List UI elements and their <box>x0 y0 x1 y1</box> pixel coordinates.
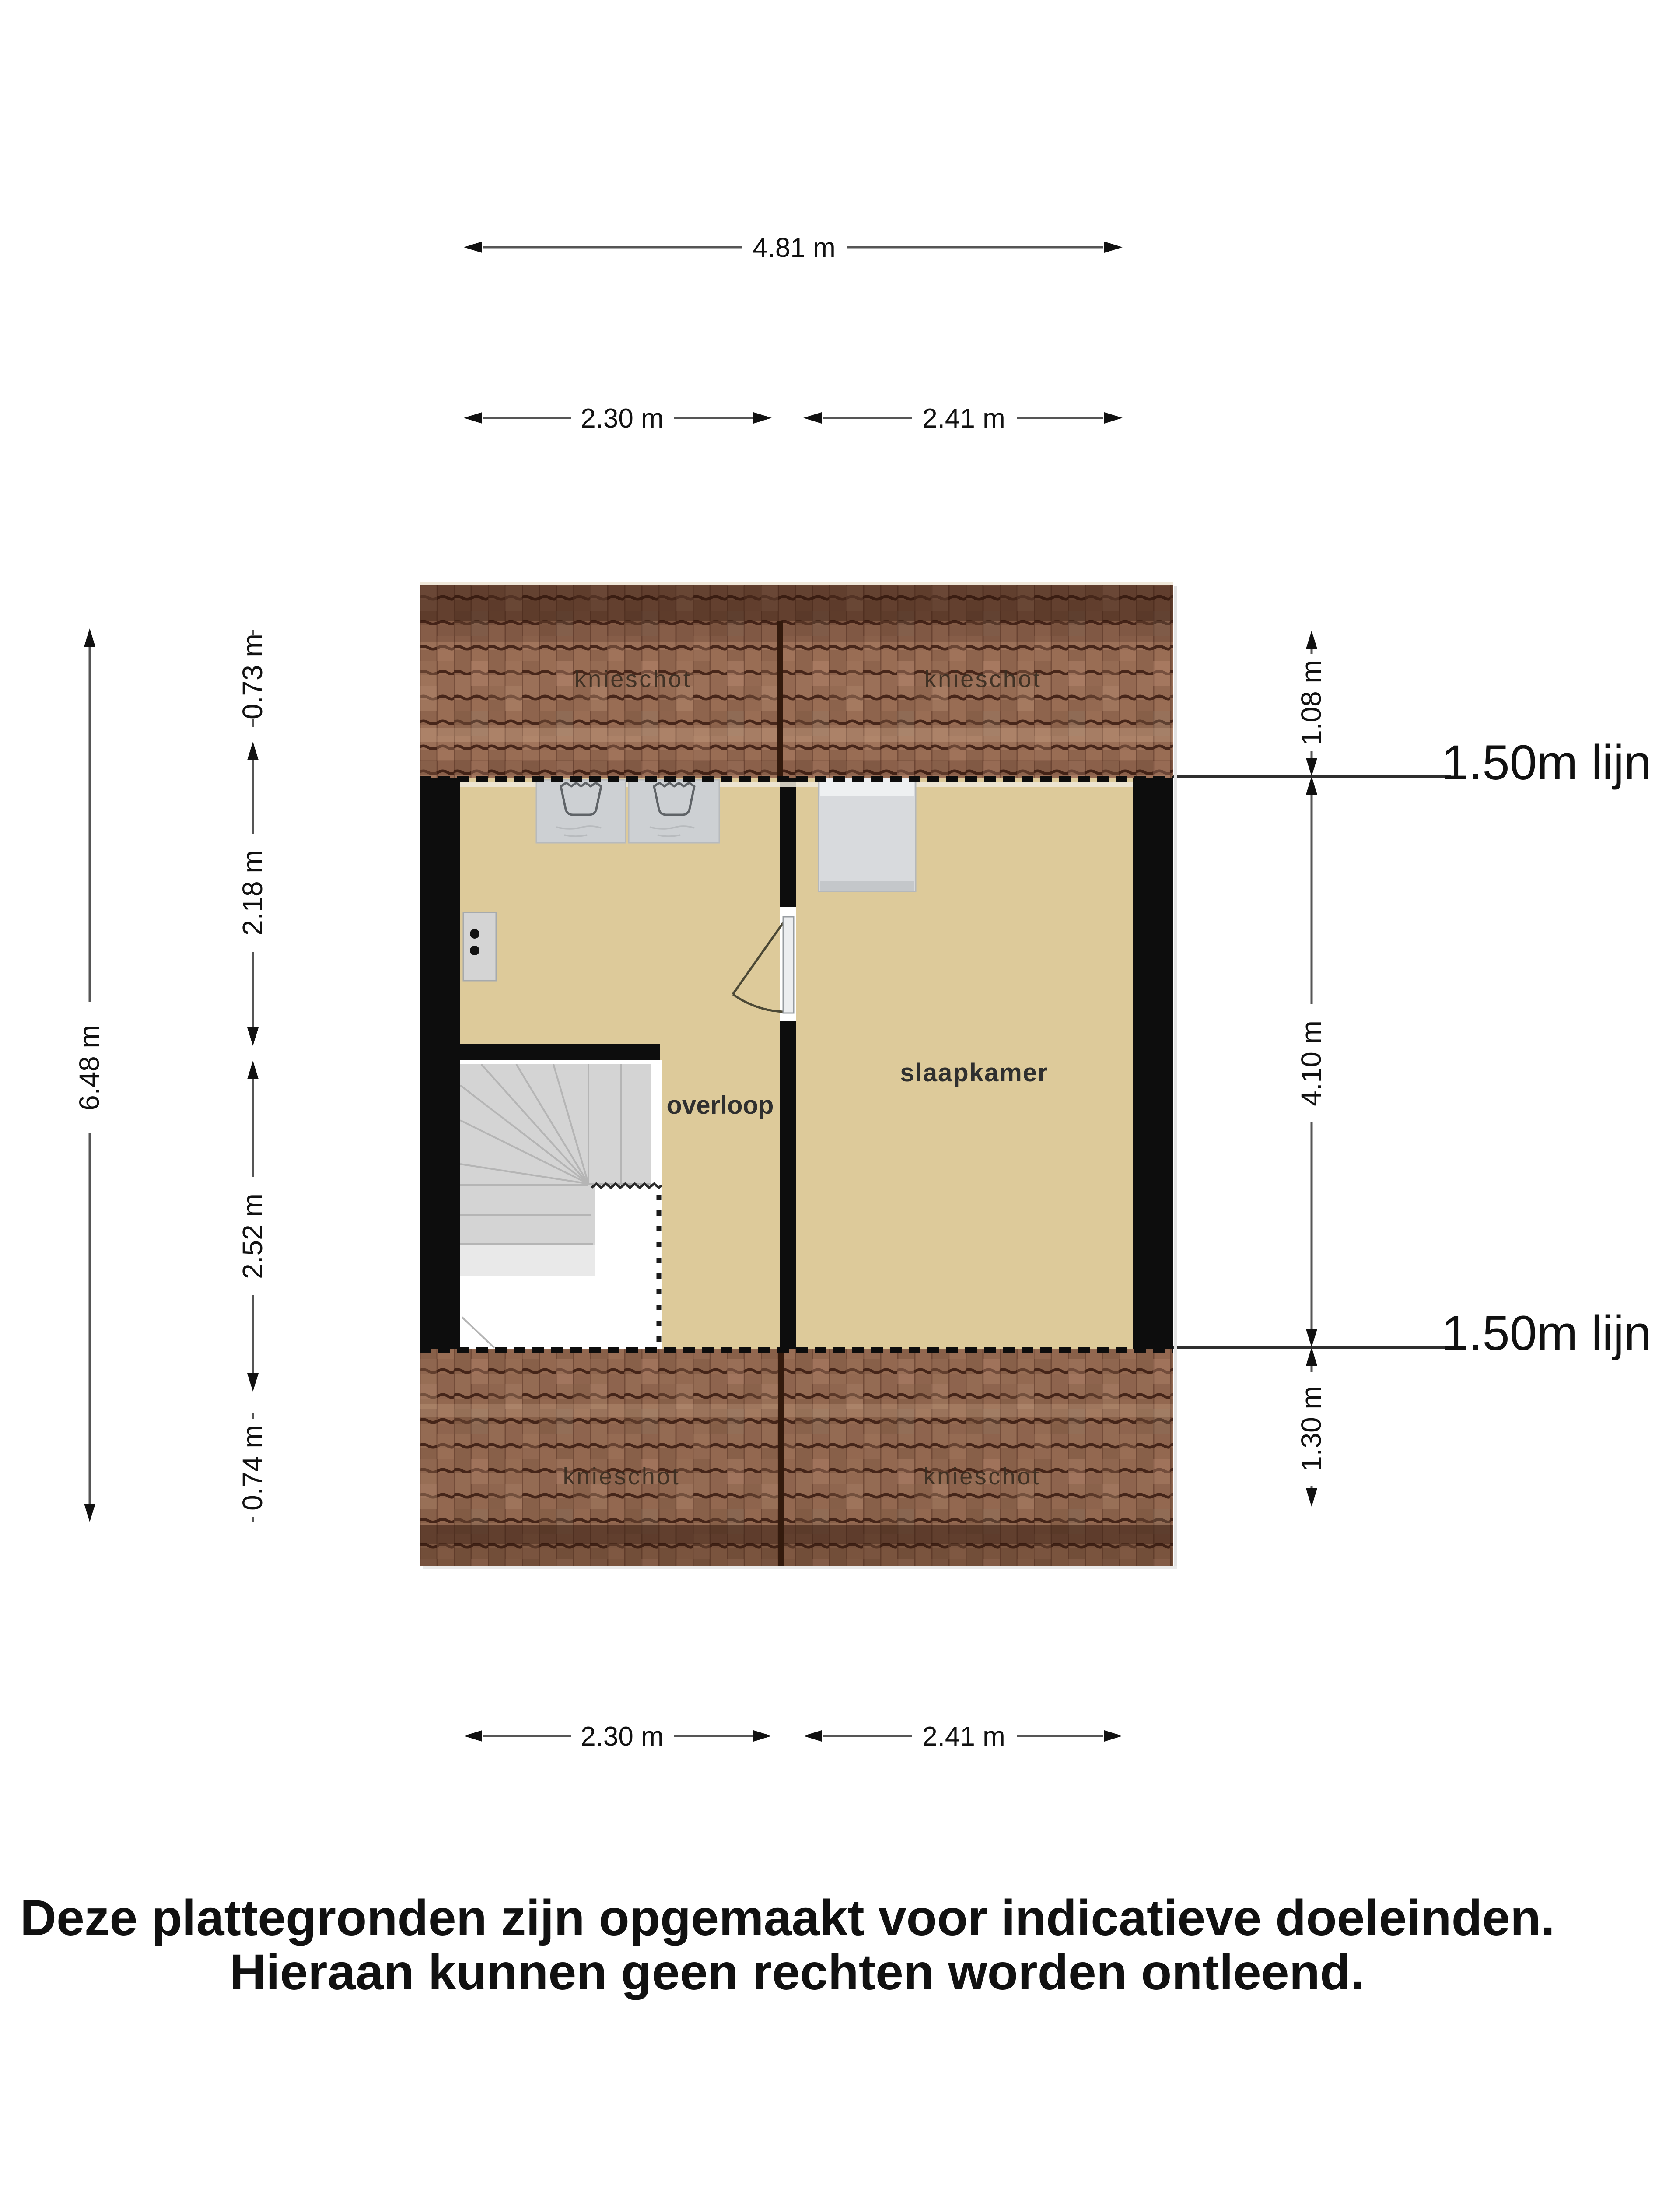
svg-text:Hieraan kunnen geen rechten wo: Hieraan kunnen geen rechten worden ontle… <box>230 1944 1365 2000</box>
svg-text:slaapkamer: slaapkamer <box>900 1059 1048 1087</box>
svg-text:2.41 m: 2.41 m <box>922 1722 1005 1752</box>
svg-text:knieschot: knieschot <box>563 1463 681 1490</box>
svg-text:2.30 m: 2.30 m <box>581 403 664 434</box>
svg-text:1.50m lijn: 1.50m lijn <box>1442 1306 1651 1360</box>
svg-text:1.50m lijn: 1.50m lijn <box>1442 735 1651 790</box>
svg-text:2.52 m: 2.52 m <box>237 1193 268 1279</box>
svg-text:2.41 m: 2.41 m <box>922 403 1005 434</box>
svg-text:1.08 m: 1.08 m <box>1295 660 1327 746</box>
svg-text:knieschot: knieschot <box>924 1463 1041 1490</box>
svg-text:1.30 m: 1.30 m <box>1295 1386 1327 1472</box>
svg-text:Deze plattegronden zijn opgema: Deze plattegronden zijn opgemaakt voor i… <box>20 1890 1555 1946</box>
svg-text:2.30 m: 2.30 m <box>581 1722 664 1752</box>
svg-text:4.10 m: 4.10 m <box>1295 1020 1327 1106</box>
svg-text:4.81 m: 4.81 m <box>752 233 836 263</box>
svg-text:overloop: overloop <box>667 1091 774 1119</box>
svg-text:6.48 m: 6.48 m <box>73 1025 105 1111</box>
svg-text:knieschot: knieschot <box>924 666 1042 692</box>
svg-text:2.18 m: 2.18 m <box>237 850 268 936</box>
svg-text:0.73 m: 0.73 m <box>237 634 268 719</box>
svg-text:0.74 m: 0.74 m <box>237 1425 268 1511</box>
svg-text:knieschot: knieschot <box>574 666 692 692</box>
